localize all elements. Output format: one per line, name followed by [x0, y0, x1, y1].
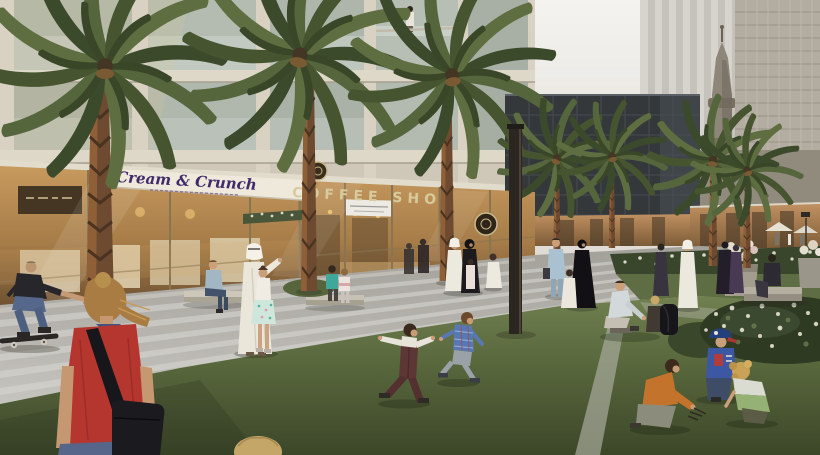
left-shop-sign [18, 186, 82, 214]
rendering-stage: Cream & Crunch COFFEE SHOP [0, 0, 820, 455]
stone-bench-right [740, 287, 808, 307]
door-logo-medallion [475, 213, 497, 235]
rendering-canvas: Cream & Crunch COFFEE SHOP [0, 0, 820, 455]
flower-planter-2 [798, 240, 820, 288]
